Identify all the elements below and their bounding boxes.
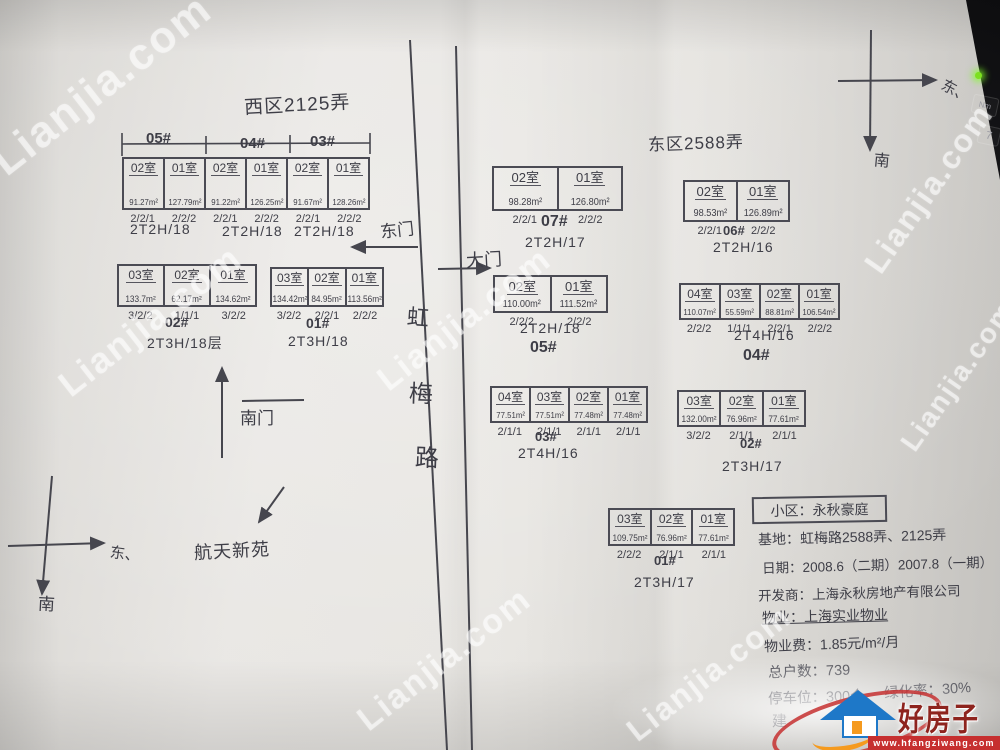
building-table: 02室98.53m² 01室126.89m² <box>683 180 790 222</box>
unit-room-label: 02室 <box>312 272 341 286</box>
unit-room-label: 02室 <box>129 162 158 176</box>
road-line-east <box>456 46 472 750</box>
building-type-label: 2T3H/17 <box>722 458 783 474</box>
unit-room-label: 02室 <box>727 395 756 409</box>
compass-top-right <box>838 30 936 150</box>
unit-room-label: 02室 <box>293 162 322 176</box>
unit-layout-spec: 2/1/1 <box>569 426 609 438</box>
compass-south-label: 南 <box>37 590 55 616</box>
unit-cell: 01室77.48m² <box>607 388 646 421</box>
unit-cell: 01室128.26m² <box>327 159 368 208</box>
unit-cell: 02室84.95m² <box>307 269 344 305</box>
unit-area-value: 77.61m² <box>769 414 799 424</box>
east-building-03: 04室77.51m² 03室77.51m² 02室77.48m² 01室77.4… <box>490 386 648 438</box>
unit-cell: 04室77.51m² <box>492 388 529 421</box>
unit-room-label: 01室 <box>769 395 798 409</box>
nearby-complex-label: 航天新苑 <box>193 535 270 565</box>
unit-area-value: 77.48m² <box>613 410 642 420</box>
unit-layout-spec: 2/1/1 <box>490 426 530 438</box>
unit-area-value: 132.00m² <box>682 414 717 424</box>
unit-room-label: 04室 <box>685 288 714 302</box>
unit-layout-spec: 2/2/2 <box>608 549 650 561</box>
unit-cell: 02室98.53m² <box>685 182 736 220</box>
section-label: 03# <box>310 133 335 150</box>
road-name-char: 梅 <box>408 374 433 410</box>
unit-room-label: 01室 <box>613 391 642 405</box>
photo-of-hand-drawn-plan: 西区2125弄 东区2588弄 05# 04# 03# 02室91.27m² 0… <box>0 0 1000 750</box>
unit-cell: 02室91.27m² <box>124 159 163 208</box>
unit-cell: 04室110.07m² <box>681 285 719 318</box>
unit-specs-row: 2/1/1 2/1/1 2/1/1 2/1/1 <box>490 426 648 438</box>
building-number-label: 01# <box>306 315 329 331</box>
south-gate-line <box>242 400 304 401</box>
building-table: 02室98.28m² 01室126.80m² <box>492 166 623 211</box>
unit-area-value: 84.95m² <box>312 294 342 304</box>
unit-cell: 01室134.62m² <box>209 266 255 305</box>
led-indicator-icon <box>975 72 982 79</box>
unit-room-label: 03室 <box>275 272 304 286</box>
unit-area-value: 113.56m² <box>347 294 381 304</box>
building-type-label: 2T4H/16 <box>734 327 795 343</box>
unit-area-value: 126.25m² <box>250 197 283 207</box>
building-type-label: 2T2H/16 <box>713 239 774 255</box>
building-type-label: 2T3H/17 <box>634 574 695 590</box>
unit-room-label: 03室 <box>725 288 754 302</box>
unit-area-value: 76.96m² <box>726 414 756 424</box>
building-type-label: 2T2H/17 <box>525 234 586 250</box>
compass-east-label: 东、 <box>109 541 142 566</box>
unit-area-value: 110.00m² <box>503 299 541 310</box>
unit-room-label: 02室 <box>695 185 726 200</box>
unit-cell: 02室77.48m² <box>568 388 607 421</box>
unit-layout-spec: 2/2/2 <box>800 323 840 335</box>
unit-room-label: 01室 <box>574 171 605 186</box>
building-number-label: 06# <box>723 223 745 238</box>
unit-room-label: 02室 <box>172 269 201 283</box>
info-panel-title-box: 小区：永秋豪庭 <box>752 495 887 524</box>
unit-room-label: 02室 <box>510 171 541 186</box>
unit-cell: 01室113.56m² <box>345 269 382 305</box>
building-type-label: 2T3H/18 <box>288 333 349 349</box>
west-zone-title: 西区2125弄 <box>243 87 351 120</box>
landmark-arrow <box>259 487 284 522</box>
unit-area-value: 134.42m² <box>272 294 307 304</box>
unit-cell: 02室62.17m² <box>163 266 209 305</box>
unit-room-label: 03室 <box>615 513 644 527</box>
unit-room-label: 03室 <box>126 269 155 283</box>
unit-area-value: 77.61m² <box>698 533 728 543</box>
unit-area-value: 134.62m² <box>216 294 251 304</box>
unit-layout-spec: 2/2/2 <box>346 310 384 322</box>
unit-layout-spec: 2/1/1 <box>693 549 735 561</box>
east-building-04: 04室110.07m² 03室55.59m² 02室88.81m² 01室106… <box>679 283 840 335</box>
unit-area-value: 106.54m² <box>803 307 836 317</box>
unit-area-value: 77.48m² <box>574 410 603 420</box>
unit-area-value: 98.53m² <box>693 208 727 219</box>
building-table: 03室134.42m² 02室84.95m² 01室113.56m² <box>270 267 384 307</box>
building-number-label: 01# <box>654 553 676 568</box>
east-building-05: 02室110.00m² 01室111.52m² 2/2/2 2/2/2 2T2H… <box>493 275 608 328</box>
unit-area-value: 110.07m² <box>684 307 716 317</box>
unit-room-label: 01室 <box>170 162 199 176</box>
unit-layout-spec: 2/2/2 <box>679 323 719 335</box>
unit-room-label: 01室 <box>218 269 247 283</box>
unit-area-value: 62.17m² <box>172 294 202 304</box>
road-name-char: 虹 <box>406 299 430 332</box>
building-table: 03室132.00m² 02室76.96m² 01室77.61m² <box>677 390 806 427</box>
unit-cell: 02室76.96m² <box>719 392 761 425</box>
building-table: 03室109.75m² 02室76.96m² 01室77.61m² <box>608 508 735 546</box>
east-building-02: 03室132.00m² 02室76.96m² 01室77.61m² 3/2/2 … <box>677 390 806 442</box>
building-table: 02室110.00m² 01室111.52m² <box>493 275 608 313</box>
east-building-07: 02室98.28m² 01室126.80m² 2/2/1 2/2/2 07# 2… <box>492 166 623 226</box>
east-building-06: 02室98.53m² 01室126.89m² 2/2/1 2/2/2 06# 2… <box>683 180 790 237</box>
road-name-char: 路 <box>414 438 439 474</box>
unit-cell: 01室126.80m² <box>557 168 622 209</box>
unit-area-value: 128.26m² <box>332 197 365 207</box>
unit-area-value: 133.7m² <box>126 294 156 304</box>
unit-area-value: 77.51m² <box>535 410 564 420</box>
unit-room-label: 02室 <box>765 288 794 302</box>
unit-cell: 01室127.79m² <box>163 159 204 208</box>
house-door-icon <box>852 721 862 734</box>
building-type-label: 2T2H/18 <box>222 223 283 239</box>
unit-area-value: 55.59m² <box>725 307 754 317</box>
unit-cell: 02室98.28m² <box>494 168 557 209</box>
unit-room-label: 02室 <box>574 391 603 405</box>
west-strip-block: 05# 04# 03# 02室91.27m² 01室127.79m² 02室91… <box>122 157 370 225</box>
info-property-mgmt-line: 物业：上海实业物业 <box>762 604 888 627</box>
unit-area-value: 91.22m² <box>211 197 240 207</box>
unit-area-value: 77.51m² <box>496 410 525 420</box>
unit-area-value: 126.80m² <box>570 197 609 208</box>
unit-room-label: 03室 <box>684 395 713 409</box>
unit-room-label: 01室 <box>747 185 778 200</box>
section-label: 04# <box>240 135 265 152</box>
compass-bottom-left <box>8 476 104 594</box>
unit-area-value: 126.89m² <box>743 208 782 219</box>
unit-cell: 02室91.67m² <box>286 159 327 208</box>
unit-cell: 03室133.7m² <box>119 266 163 305</box>
unit-room-label: 01室 <box>252 162 281 176</box>
unit-cell: 01室111.52m² <box>550 277 607 311</box>
unit-room-label: 02室 <box>507 280 538 295</box>
building-number-label: 03# <box>535 429 557 444</box>
unit-cell: 01室126.25m² <box>245 159 286 208</box>
unit-cell: 02室88.81m² <box>759 285 799 318</box>
south-gate-label: 南门 <box>240 404 274 429</box>
unit-area-value: 91.27m² <box>129 197 158 207</box>
unit-room-label: 04室 <box>496 391 525 405</box>
unit-cell: 01室126.89m² <box>736 182 789 220</box>
unit-area-value: 127.79m² <box>168 197 201 207</box>
building-type-label: 2T2H/18 <box>520 320 581 336</box>
building-number-label: 02# <box>165 314 188 330</box>
building-type-label: 2T3H/18层 <box>147 333 223 353</box>
key-label: Nm <box>978 100 992 111</box>
unit-cell: 03室55.59m² <box>719 285 759 318</box>
west-building-02: 03室133.7m² 02室62.17m² 01室134.62m² 3/2/2 … <box>117 264 257 322</box>
building-number-label: 07# <box>541 213 568 231</box>
unit-cell: 02室91.22m² <box>204 159 245 208</box>
unit-cell: 03室134.42m² <box>272 269 307 305</box>
building-type-label: 2T2H/18 <box>130 221 191 237</box>
unit-area-value: 111.52m² <box>560 299 598 310</box>
site-logo-url: www.hfangziwang.com <box>868 736 1000 750</box>
unit-cell: 02室110.00m² <box>495 277 550 311</box>
unit-cell: 01室77.61m² <box>691 510 733 544</box>
unit-room-label: 02室 <box>657 513 686 527</box>
unit-layout-spec: 3/2/2 <box>117 310 164 322</box>
unit-cell: 03室77.51m² <box>529 388 568 421</box>
unit-room-label: 02室 <box>211 162 240 176</box>
unit-room-label: 01室 <box>350 272 379 286</box>
unit-area-value: 109.75m² <box>612 533 647 543</box>
building-type-label: 2T4H/16 <box>518 445 579 461</box>
unit-room-label: 03室 <box>535 391 564 405</box>
unit-layout-spec: 3/2/2 <box>210 310 257 322</box>
building-type-label: 2T2H/18 <box>294 223 355 239</box>
section-label: 05# <box>146 130 171 147</box>
building-number-label: 05# <box>530 339 557 357</box>
building-table: 04室110.07m² 03室55.59m² 02室88.81m² 01室106… <box>679 283 840 320</box>
unit-room-label: 01室 <box>334 162 363 176</box>
main-gate-label: 大门 <box>465 245 502 273</box>
building-number-label: 04# <box>743 347 770 365</box>
unit-area-value: 98.28m² <box>508 197 542 208</box>
unit-cell: 02室76.96m² <box>650 510 692 544</box>
unit-layout-spec: 2/1/1 <box>609 426 649 438</box>
building-table: 03室133.7m² 02室62.17m² 01室134.62m² <box>117 264 257 307</box>
building-table: 02室91.27m² 01室127.79m² 02室91.22m² 01室126… <box>122 157 370 210</box>
east-building-01: 03室109.75m² 02室76.96m² 01室77.61m² 2/2/2 … <box>608 508 735 561</box>
unit-layout-spec: 3/2/2 <box>270 310 308 322</box>
east-zone-title: 东区2588弄 <box>648 127 745 155</box>
building-table: 04室77.51m² 03室77.51m² 02室77.48m² 01室77.4… <box>490 386 648 423</box>
unit-cell: 01室77.61m² <box>762 392 804 425</box>
unit-area-value: 88.81m² <box>765 307 794 317</box>
unit-area-value: 91.67m² <box>293 197 322 207</box>
east-gate-label: 东门 <box>379 214 415 242</box>
unit-area-value: 76.96m² <box>656 533 686 543</box>
complex-name-title: 小区：永秋豪庭 <box>770 499 868 521</box>
key-label: 7 <box>985 129 993 142</box>
unit-cell: 01室106.54m² <box>798 285 838 318</box>
compass-south-label: 南 <box>873 146 891 171</box>
unit-cell: 03室109.75m² <box>610 510 650 544</box>
building-number-label: 02# <box>740 436 762 451</box>
unit-cell: 03室132.00m² <box>679 392 719 425</box>
west-building-01: 03室134.42m² 02室84.95m² 01室113.56m² 3/2/2… <box>270 267 384 322</box>
unit-layout-spec: 2/1/1 <box>763 430 806 442</box>
unit-layout-spec: 3/2/2 <box>677 430 720 442</box>
unit-room-label: 01室 <box>563 280 594 295</box>
unit-room-label: 01室 <box>804 288 833 302</box>
unit-room-label: 01室 <box>699 513 728 527</box>
